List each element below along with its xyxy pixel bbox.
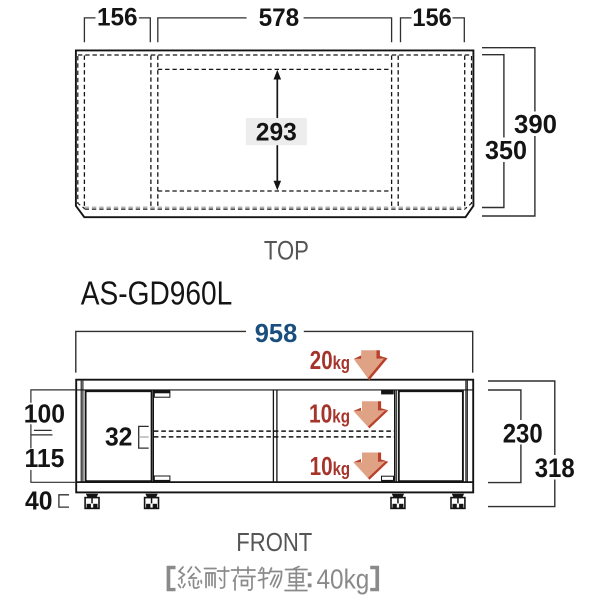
svg-text:FRONT: FRONT <box>236 527 312 557</box>
svg-text:20kg: 20kg <box>310 347 350 375</box>
svg-text:156: 156 <box>97 4 138 32</box>
svg-text:40: 40 <box>25 486 53 516</box>
svg-text:958: 958 <box>255 318 298 348</box>
svg-text:350: 350 <box>485 135 527 165</box>
svg-text:AS-GD960L: AS-GD960L <box>81 275 233 312</box>
svg-text:TOP: TOP <box>264 235 309 265</box>
svg-text:100: 100 <box>24 398 65 428</box>
svg-text:318: 318 <box>535 453 575 483</box>
svg-text:230: 230 <box>503 419 543 449</box>
svg-text:156: 156 <box>412 4 451 32</box>
svg-text:293: 293 <box>256 119 297 147</box>
svg-text:10kg: 10kg <box>310 453 351 481</box>
svg-text:578: 578 <box>259 4 300 32</box>
svg-text:40kg: 40kg <box>317 563 370 594</box>
svg-text:32: 32 <box>105 421 133 451</box>
svg-text:10kg: 10kg <box>309 400 350 428</box>
svg-text:115: 115 <box>24 443 64 473</box>
